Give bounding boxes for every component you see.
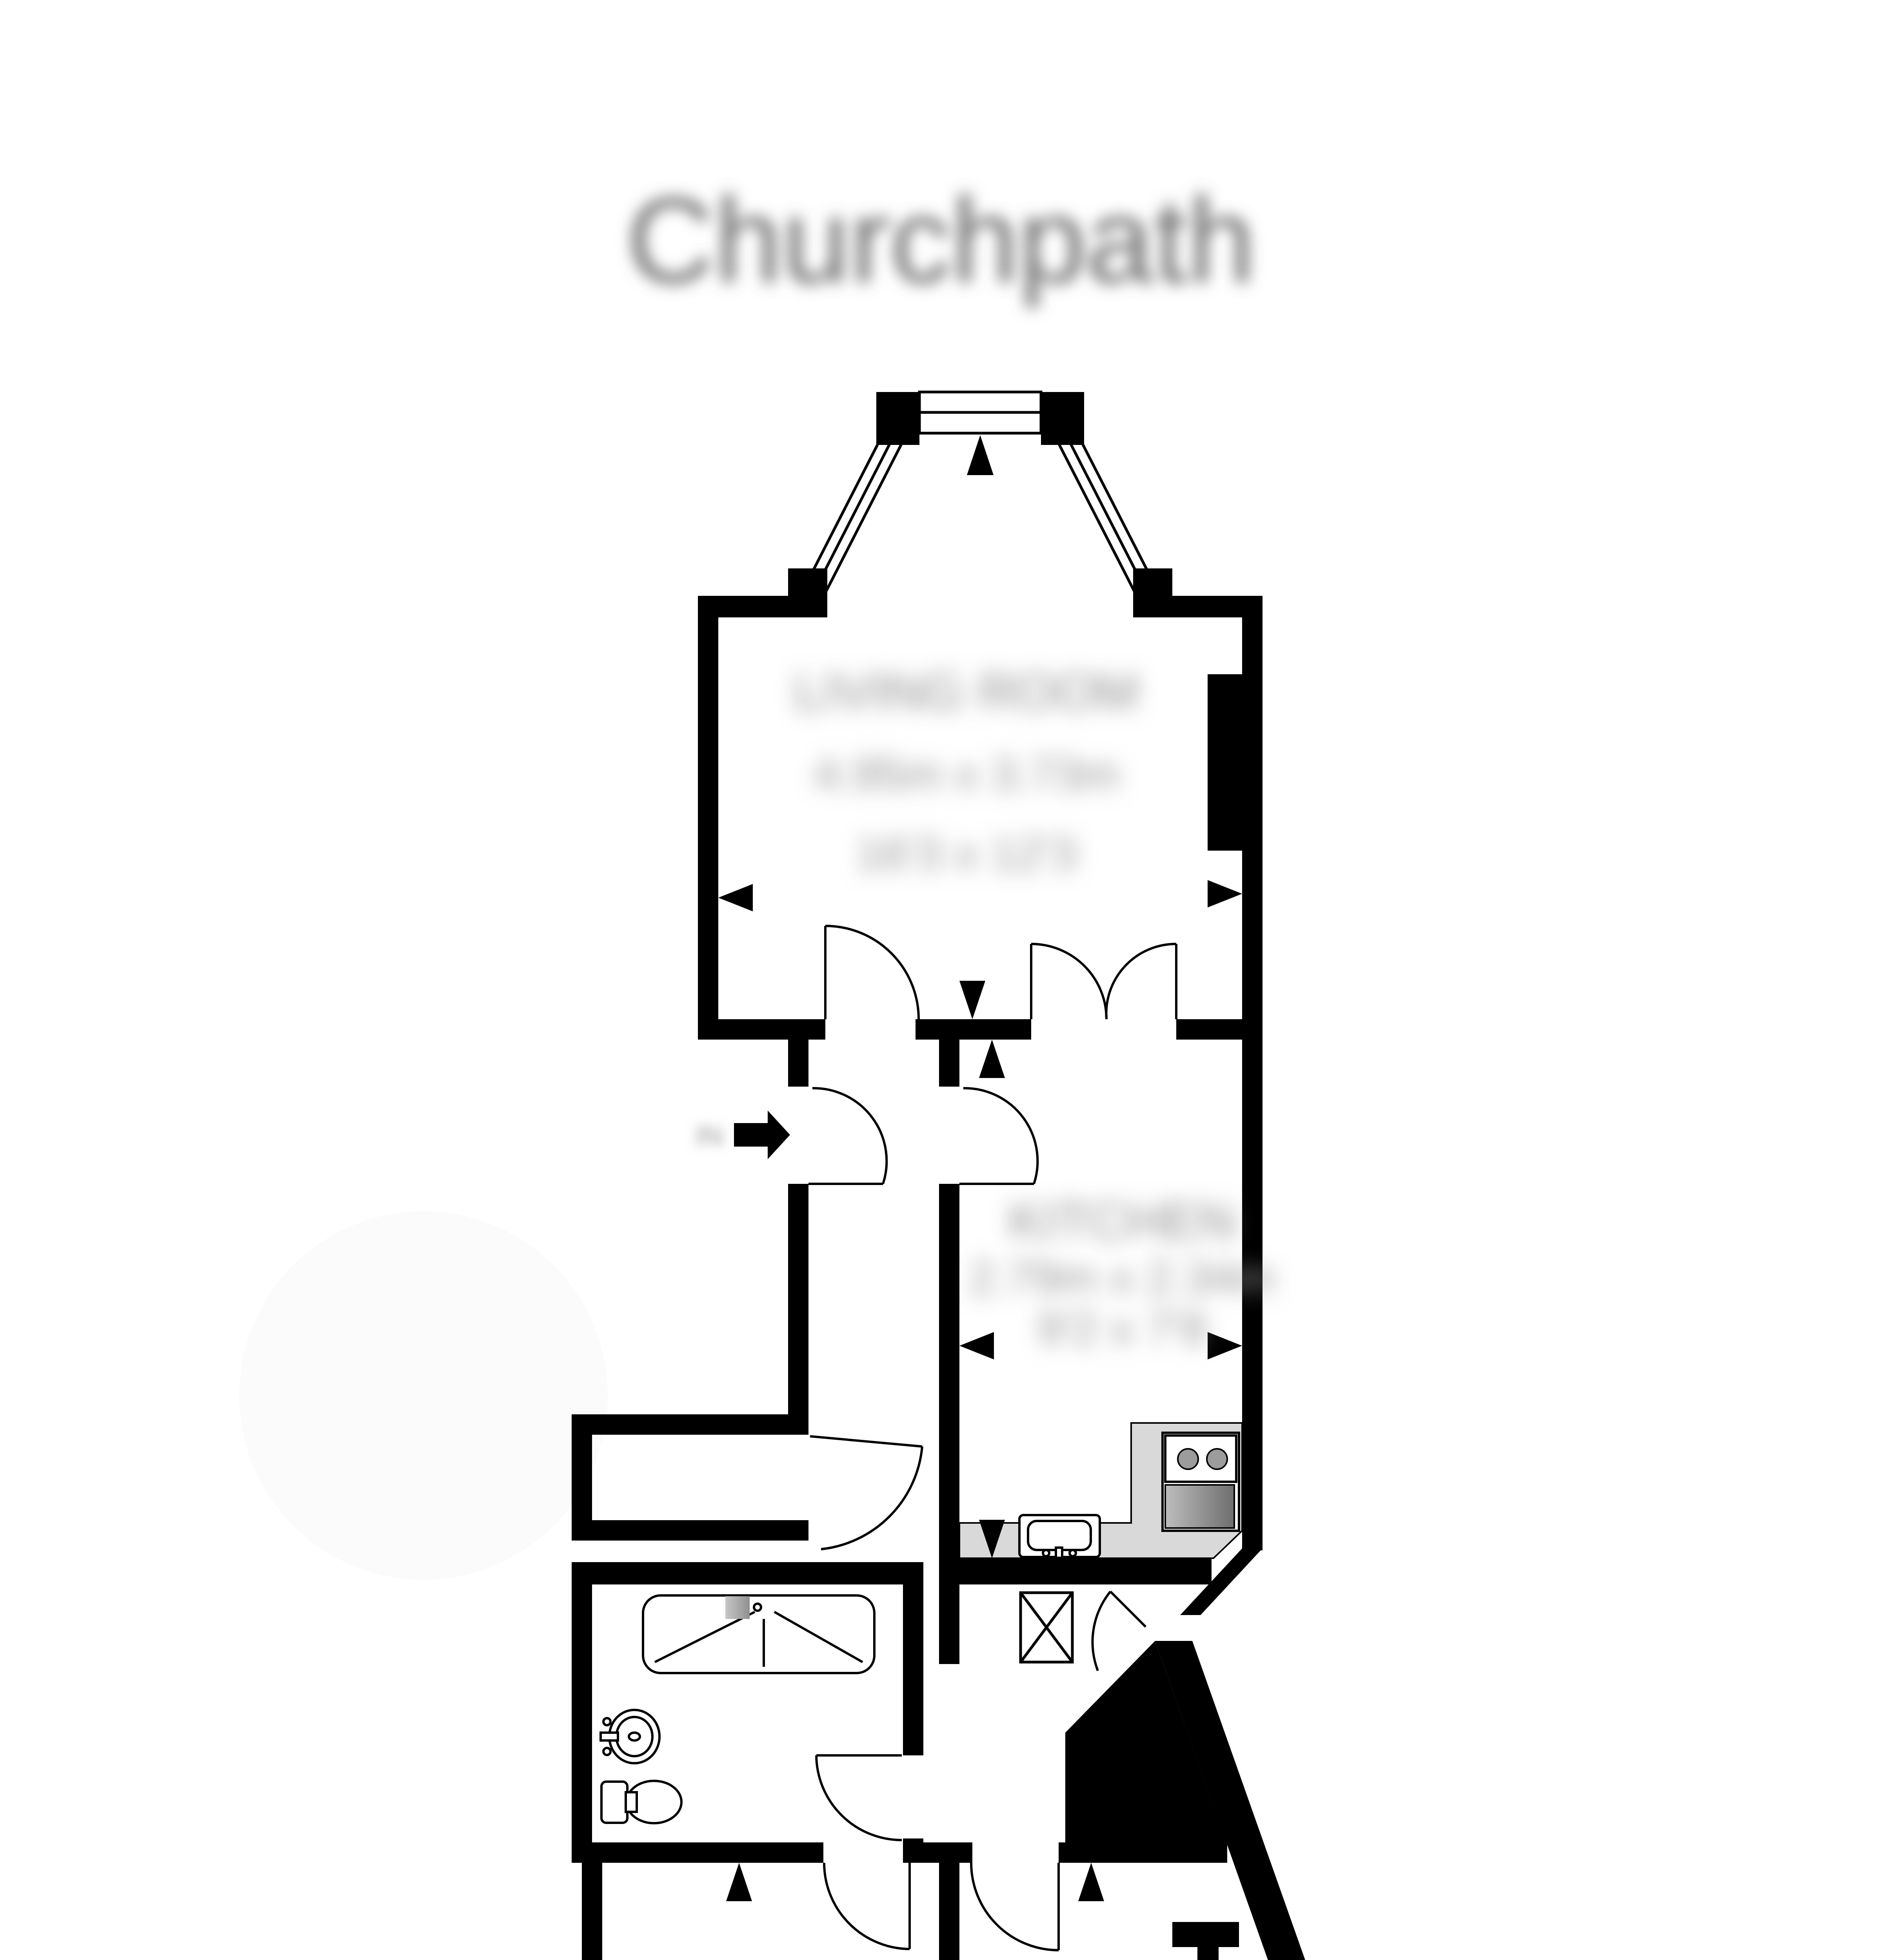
page-title: Churchpath: [627, 172, 1255, 309]
wall-living-left: [698, 596, 718, 1019]
bedroom-2: BEDROOM 2 2.87m x 2.84m 9'5 x 9'4: [572, 1842, 959, 1960]
measure-arrow-right-icon: [1208, 880, 1242, 907]
measure-arrow-right-icon: [1208, 1332, 1242, 1359]
kitchen-size-metric: 2.79m x 2.34m: [969, 1252, 1275, 1304]
wall-corridor-left: [788, 1184, 808, 1435]
door-bedroom2: [824, 1863, 910, 1949]
door-living: [825, 926, 919, 1019]
wall-vestibule-west: [939, 1584, 959, 1664]
toilet-icon: [601, 1781, 681, 1823]
wall-bedroom-divider: [939, 1863, 959, 1960]
door-bathroom: [816, 1755, 902, 1840]
wall-living-right: [1242, 596, 1263, 1019]
sink-icon: [1019, 1515, 1100, 1558]
kitchen-size-imperial: 9'2 x 7'8: [1037, 1303, 1207, 1355]
door-hall-left: [808, 1088, 887, 1184]
measure-arrow-up-icon: [979, 1040, 1005, 1078]
measure-arrow-left-icon: [718, 884, 753, 911]
measure-arrow-up-icon: [967, 435, 994, 475]
shower-unit-icon: [725, 1596, 750, 1619]
living-room-size-metric: 4.95m x 3.73m: [814, 748, 1119, 800]
chimney-breast: [1208, 674, 1242, 851]
living-room-label: LIVING ROOM: [794, 663, 1139, 720]
storage-cupboard-icon: [1021, 1593, 1072, 1662]
bathroom: [572, 1562, 923, 1863]
measure-arrow-up-icon: [1078, 1863, 1104, 1901]
measure-arrow-left-icon: [959, 1332, 994, 1359]
watermark-circle: [239, 1211, 608, 1580]
door-hall-kitchen: [959, 1088, 1037, 1184]
basin-icon: [601, 1710, 659, 1763]
wall-living-bottom: [916, 1019, 1031, 1040]
measure-arrow-up-icon: [726, 1863, 752, 1901]
door-bedroom1: [971, 1863, 1059, 1950]
entrance-label: IN: [695, 1120, 723, 1152]
entrance-arrow-icon: [734, 1111, 790, 1159]
hall-alcove: [572, 1414, 922, 1549]
door-alcove: [810, 1436, 922, 1549]
bay-window: [805, 392, 1156, 597]
wall-living-bottom: [698, 1019, 825, 1040]
living-room: LIVING ROOM 4.95m x 3.73m 16'3 x 12'3: [698, 392, 1263, 1078]
wall-living-bottom: [1176, 1019, 1263, 1040]
floorplan-canvas: Churchpath: [0, 0, 1882, 1960]
bedroom-1: BEDROOM 1 3.05m x 2.87m 10'0 x 9'5: [959, 1842, 1361, 1960]
living-room-size-imperial: 16'3 x 12'3: [856, 828, 1077, 880]
double-door-living-kitchen: [1031, 944, 1176, 1019]
cooker-icon: [1163, 1433, 1239, 1531]
measure-arrow-down-icon: [959, 981, 985, 1019]
vestibule: [1021, 1592, 1370, 1960]
bath-icon: [643, 1595, 874, 1673]
wall-kitchen-bottom: [939, 1558, 1212, 1584]
floorplan-page: Churchpath: [0, 0, 1882, 1960]
wall-kitchen-west: [939, 1184, 959, 1558]
kitchen: KITCHEN 2.79m x 2.34m 9'2 x 7'8: [939, 1040, 1275, 1664]
kitchen-label: KITCHEN: [1008, 1192, 1235, 1250]
